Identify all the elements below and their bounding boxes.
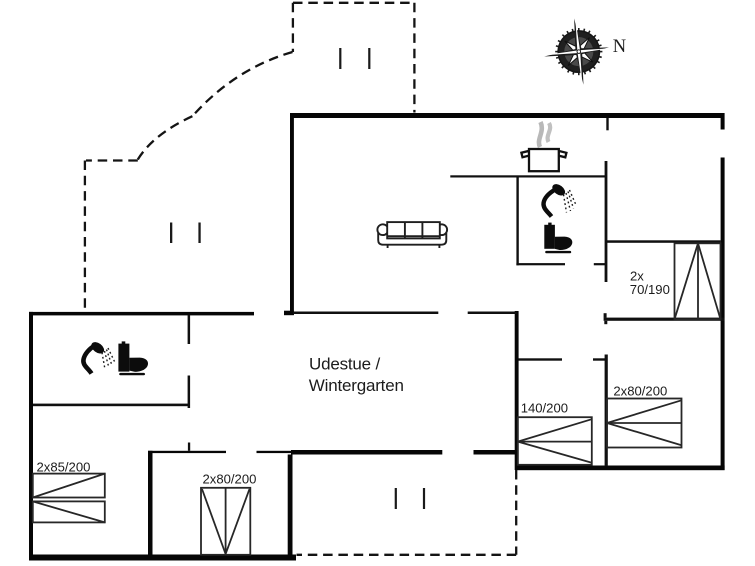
svg-text:140/200: 140/200 <box>521 401 568 416</box>
svg-text:Wintergarten: Wintergarten <box>309 376 404 395</box>
svg-text:N: N <box>613 37 626 57</box>
svg-text:2x85/200: 2x85/200 <box>37 459 91 474</box>
svg-text:2x: 2x <box>630 268 644 283</box>
svg-text:2x80/200: 2x80/200 <box>203 472 257 487</box>
svg-text:Udestue /: Udestue / <box>309 355 380 374</box>
svg-text:70/190: 70/190 <box>630 282 670 297</box>
svg-text:2x80/200: 2x80/200 <box>613 383 667 398</box>
